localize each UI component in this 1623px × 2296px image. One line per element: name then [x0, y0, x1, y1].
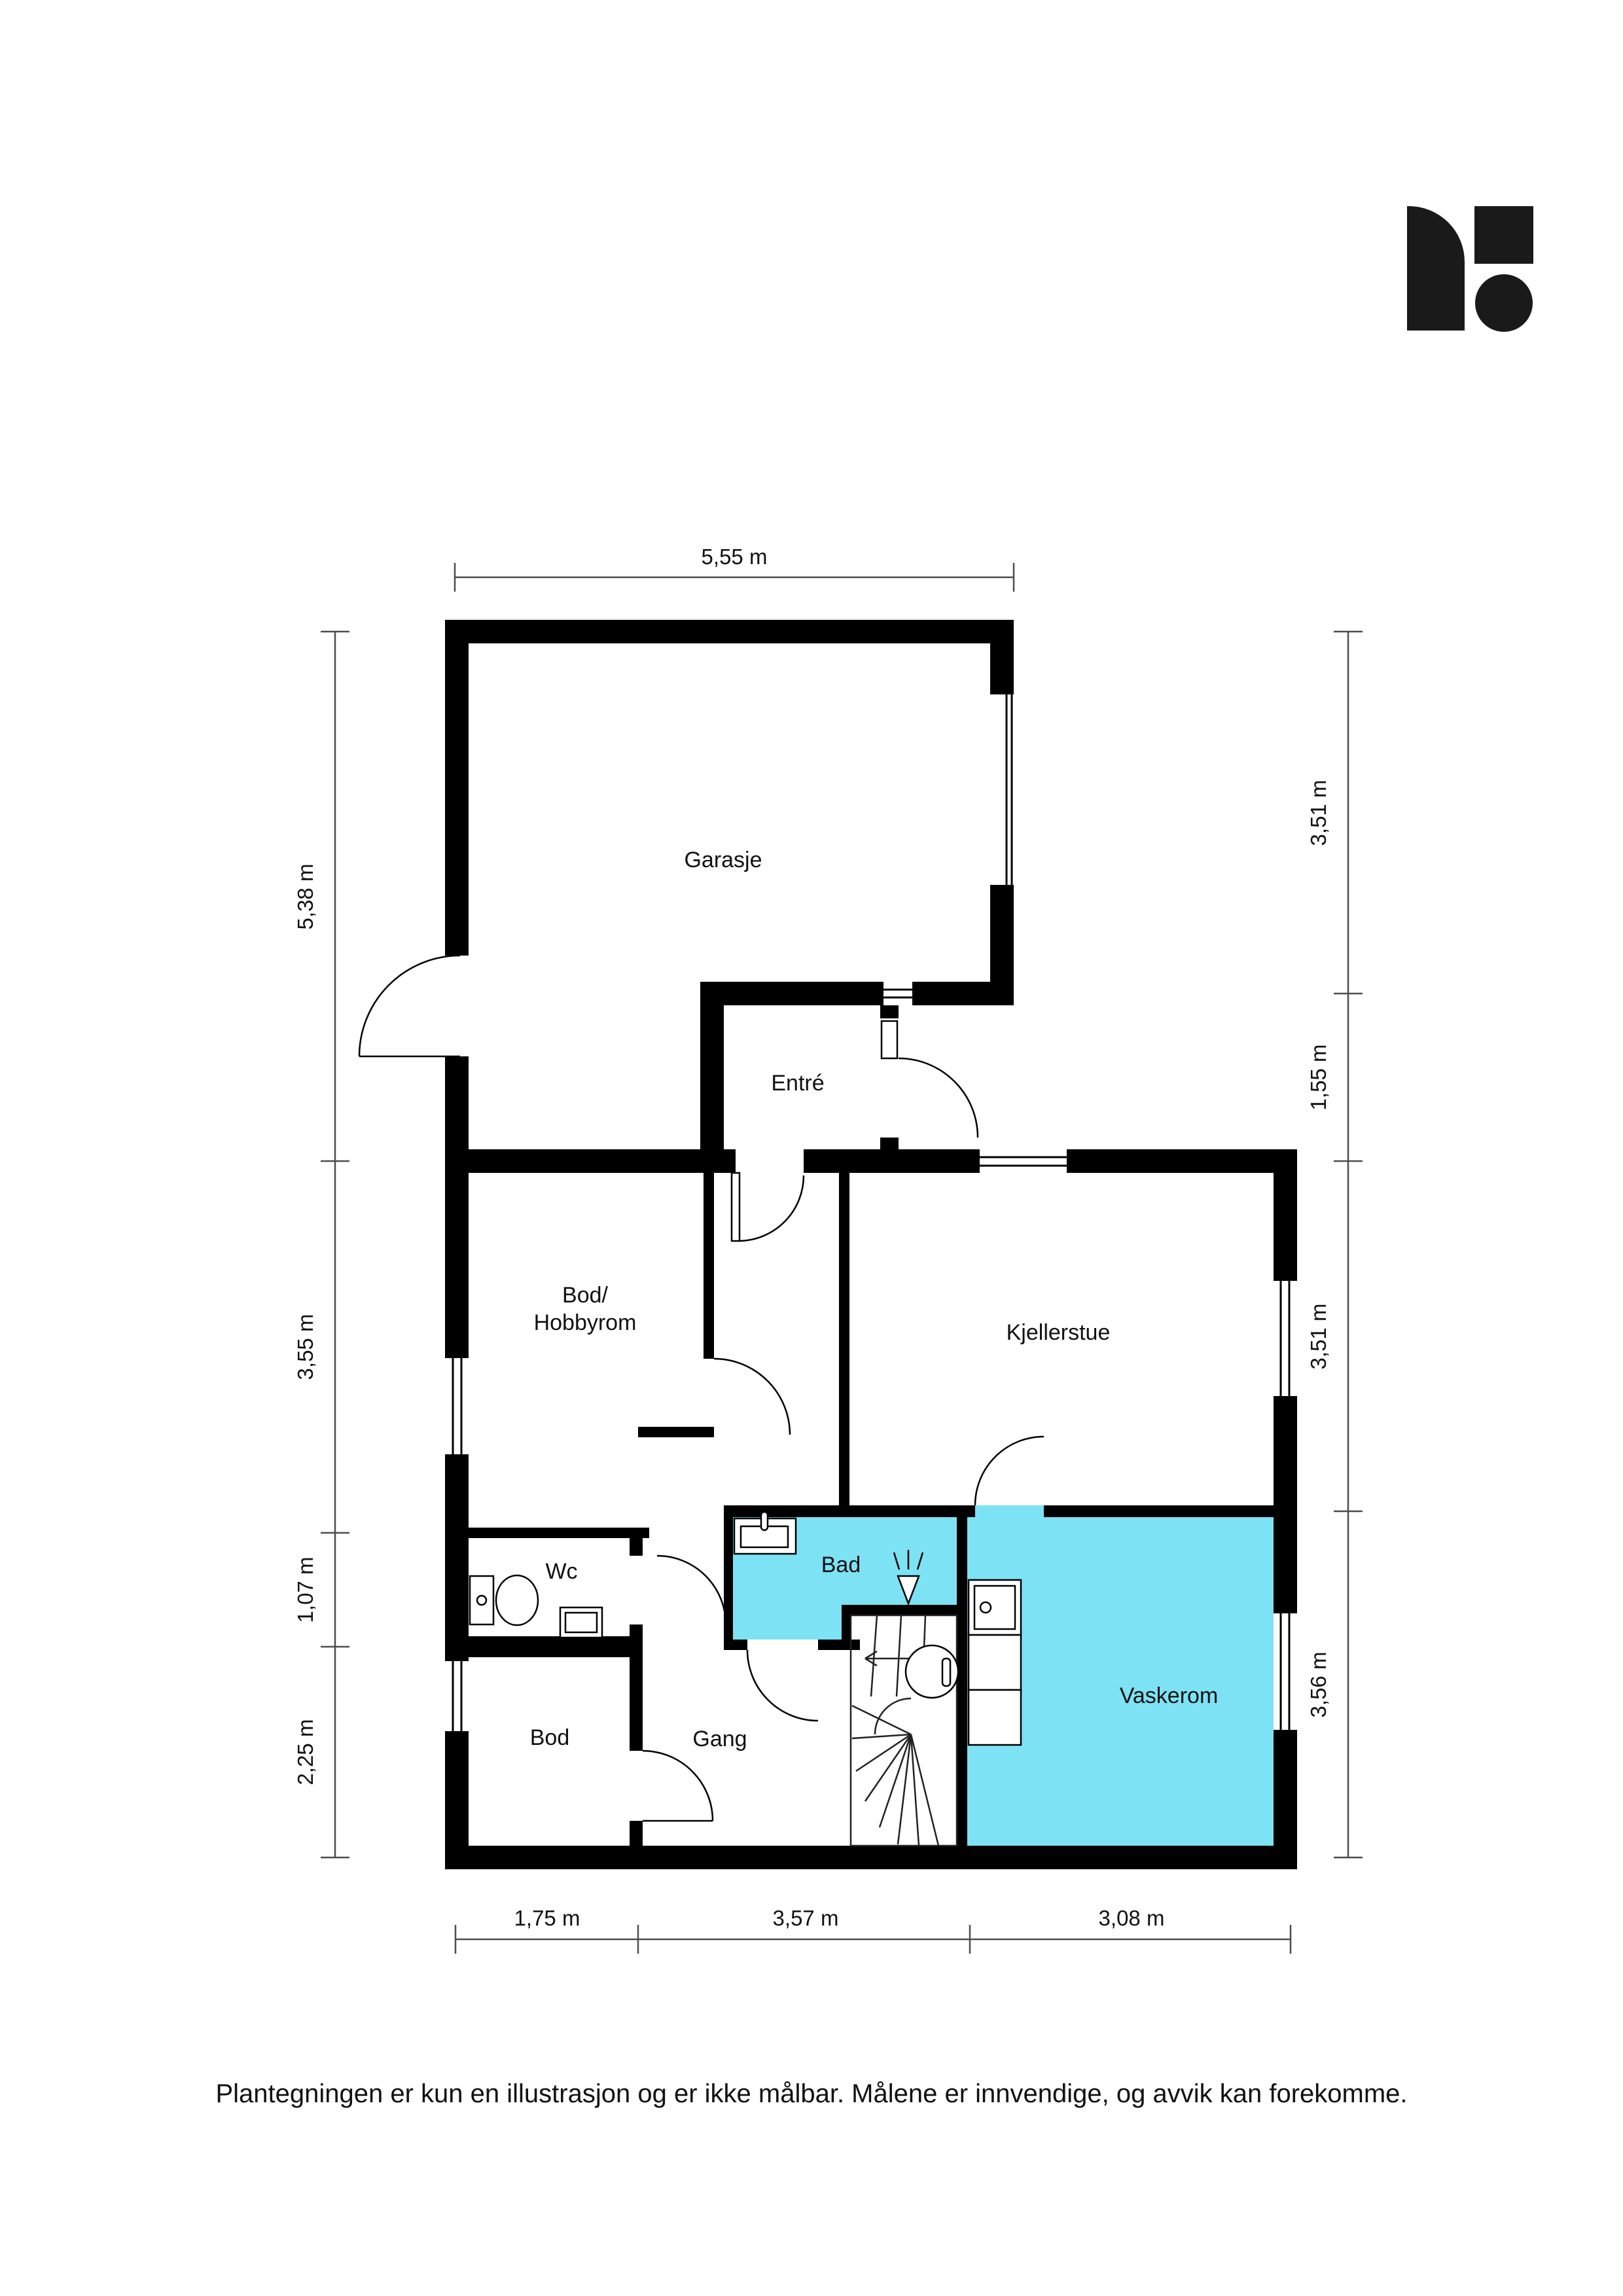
- dim-label-left-2: 3,55 m: [293, 1314, 317, 1380]
- dim-right: [1334, 632, 1363, 1857]
- laundry-counter-1: [969, 1635, 1021, 1690]
- wall-wc-top: [469, 1528, 649, 1538]
- door-garage-exterior: [359, 956, 460, 1056]
- dim-label-right-4: 3,56 m: [1306, 1652, 1330, 1718]
- wall-entry-south-right: [804, 1149, 880, 1173]
- wall-wc-east-3: [630, 1821, 643, 1846]
- wall-stair-north: [851, 1605, 957, 1615]
- wall-livingroom-west: [839, 1173, 849, 1505]
- wall-left-3: [445, 1454, 469, 1661]
- wall-garage-bottom-left: [700, 982, 883, 1005]
- door-hobbyroom: [714, 1359, 790, 1435]
- disclaimer-text: Plantegningen er kun en illustrasjon og …: [215, 2079, 1407, 2108]
- logo: [1407, 206, 1533, 332]
- wall-east-1: [1274, 1149, 1297, 1281]
- floorplan-drawing: Garasje Entré Bod/ Hobbyrom Kjellerstue …: [0, 0, 1623, 2296]
- bath-sink: [734, 1512, 796, 1554]
- window-laundry-east: [1281, 1613, 1289, 1730]
- window-livingroom-top: [980, 1157, 1067, 1166]
- wall-entry-west: [700, 982, 724, 1149]
- wall-bath-west: [724, 1505, 733, 1650]
- wall-house-top-west: [469, 1149, 724, 1173]
- wall-frontdoor-upper: [880, 1005, 899, 1018]
- label-storage: Bod: [530, 1725, 570, 1750]
- label-laundry: Vaskerom: [1120, 1683, 1219, 1708]
- door-bod: [643, 1751, 713, 1821]
- wall-entry-south-left: [724, 1149, 736, 1173]
- dim-left: [321, 632, 349, 1857]
- dim-bottom: [455, 1925, 1291, 1954]
- dim-label-right-2: 1,55 m: [1306, 1045, 1330, 1111]
- wall-wc-bod-divider: [469, 1636, 643, 1657]
- window-livingroom-east: [1281, 1281, 1289, 1396]
- wall-stair-west-stub: [842, 1605, 851, 1650]
- laundry-counter-2: [969, 1690, 1021, 1745]
- label-entry: Entré: [771, 1071, 824, 1096]
- wall-bottom: [445, 1846, 1297, 1869]
- label-bath: Bad: [821, 1552, 861, 1577]
- wc-sink: [560, 1607, 602, 1638]
- label-wc: Wc: [545, 1559, 577, 1584]
- label-garage: Garasje: [684, 848, 762, 872]
- window-hobby-left: [453, 1358, 461, 1454]
- dim-label-bottom-1: 1,75 m: [514, 1906, 580, 1930]
- floorplan-page: Garasje Entré Bod/ Hobbyrom Kjellerstue …: [0, 0, 1623, 2296]
- garage-door-opening: [1007, 694, 1012, 885]
- wall-left-1: [445, 620, 469, 956]
- label-storage-hobby-line1: Bod/: [562, 1283, 608, 1308]
- logo-square: [1474, 206, 1533, 264]
- dim-label-bottom-2: 3,57 m: [773, 1906, 839, 1930]
- dim-label-left-1: 5,38 m: [293, 864, 317, 930]
- dim-label-bottom-3: 3,08 m: [1099, 1906, 1165, 1930]
- window-bod-left: [453, 1661, 461, 1731]
- wall-left-2: [445, 1056, 469, 1358]
- label-basement-living: Kjellerstue: [1007, 1320, 1111, 1345]
- dim-label-right-1: 3,51 m: [1306, 780, 1330, 846]
- water-heater: [906, 1645, 958, 1698]
- logo-rounded-block: [1407, 206, 1465, 331]
- wall-livingroom-top-right: [1067, 1149, 1297, 1173]
- door-bath: [747, 1650, 818, 1721]
- door-front-entry: [882, 1021, 978, 1138]
- laundry-machine: [969, 1580, 1021, 1635]
- wall-wc-east-1: [630, 1528, 643, 1556]
- door-wc: [657, 1556, 726, 1624]
- label-storage-hobby-line2: Hobbyrom: [534, 1310, 637, 1335]
- wall-bath-south-right: [818, 1640, 860, 1650]
- dim-label-left-3: 1,07 m: [293, 1557, 317, 1623]
- wall-livingroom-top-left: [880, 1149, 980, 1173]
- logo-circle: [1475, 274, 1533, 332]
- wall-hobby-east: [704, 1173, 714, 1359]
- window-entry-sidelight: [883, 990, 912, 997]
- door-laundry: [975, 1437, 1044, 1505]
- wall-garage-top: [445, 620, 1014, 643]
- dim-label-top: 5,55 m: [702, 545, 768, 569]
- wall-garage-bottom-right: [912, 982, 1014, 1005]
- dim-label-left-4: 2,25 m: [293, 1719, 317, 1785]
- dim-label-right-3: 3,51 m: [1306, 1304, 1330, 1370]
- label-hallway: Gang: [692, 1727, 747, 1751]
- wall-bath-south-left: [724, 1640, 747, 1650]
- wc-toilet: [470, 1575, 538, 1625]
- room-laundry-door-gap: [975, 1505, 1044, 1517]
- wall-southrooms-north-right: [1044, 1505, 1297, 1517]
- door-entry-hall: [732, 1173, 804, 1241]
- wall-hobby-south-stub: [638, 1427, 714, 1437]
- wall-east-2: [1274, 1396, 1297, 1613]
- wall-garage-right-upper: [990, 620, 1014, 694]
